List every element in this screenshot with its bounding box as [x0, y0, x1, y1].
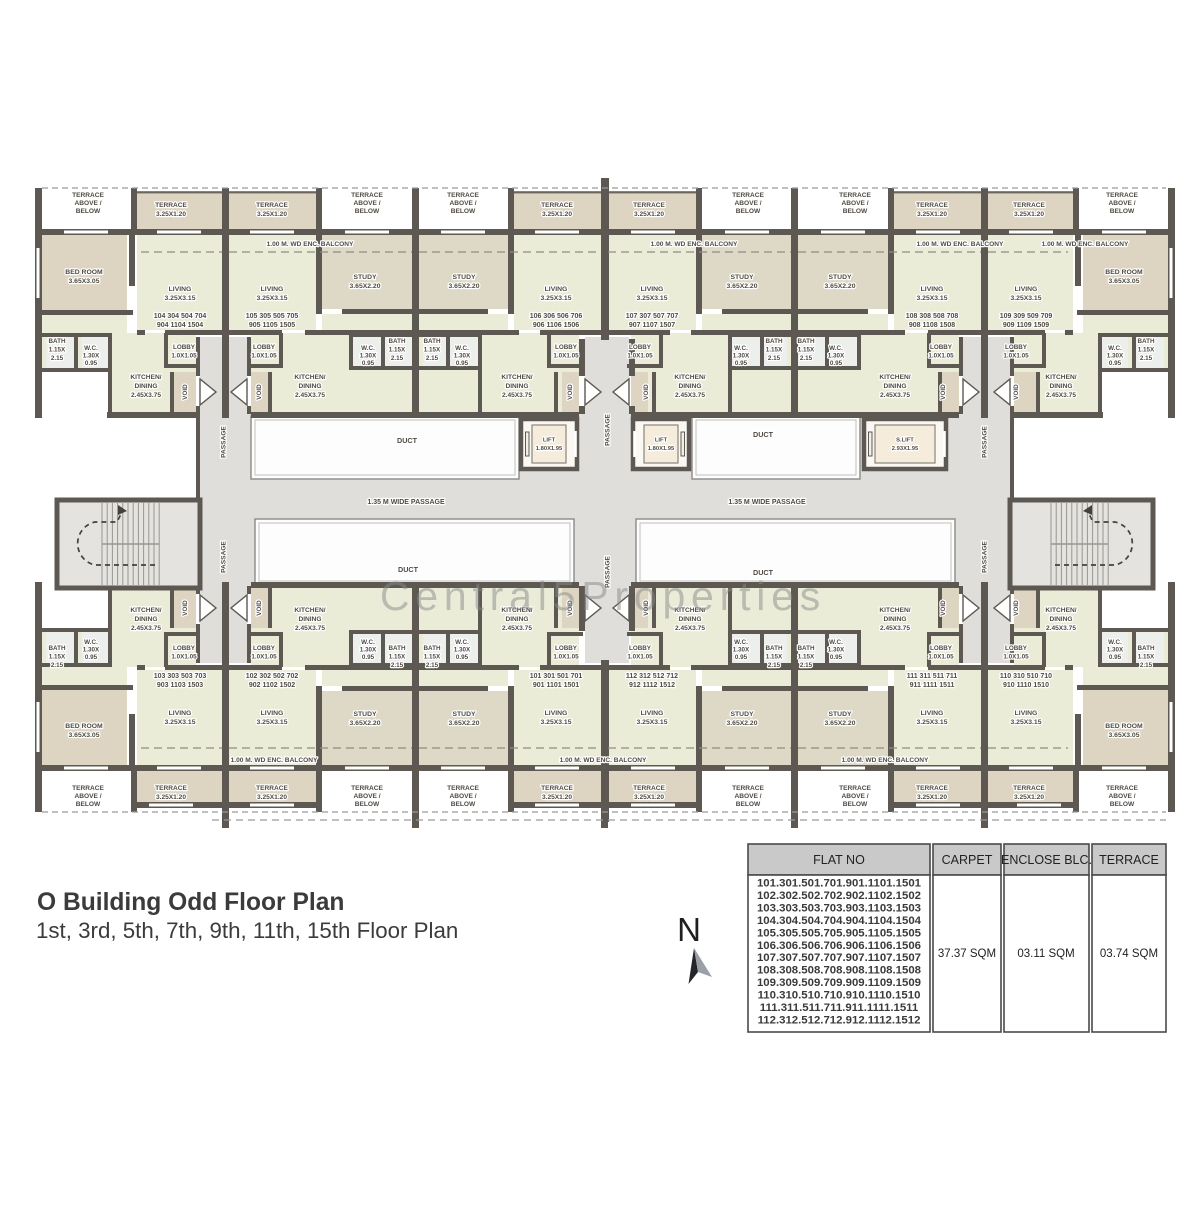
svg-text:FLAT NO: FLAT NO [813, 853, 865, 867]
svg-text:ABOVE /: ABOVE / [449, 793, 476, 800]
svg-text:BELOW: BELOW [451, 208, 476, 215]
svg-text:ABOVE /: ABOVE / [449, 200, 476, 207]
svg-text:DUCT: DUCT [397, 436, 418, 445]
svg-text:3.25X3.15: 3.25X3.15 [165, 719, 196, 726]
svg-text:S.LIFT: S.LIFT [896, 438, 914, 444]
svg-text:VOID: VOID [940, 600, 947, 616]
svg-text:902 1102 1502: 902 1102 1502 [249, 682, 295, 689]
svg-text:DUCT: DUCT [753, 430, 774, 439]
svg-text:LOBBY: LOBBY [930, 344, 953, 351]
svg-text:3.25X3.15: 3.25X3.15 [1011, 719, 1042, 726]
svg-text:1.00 M. WD ENC. BALCONY: 1.00 M. WD ENC. BALCONY [651, 241, 738, 248]
svg-text:BELOW: BELOW [76, 208, 101, 215]
svg-text:STUDY: STUDY [353, 711, 377, 718]
svg-text:1.15X: 1.15X [49, 346, 66, 353]
svg-text:1.00 M. WD ENC. BALCONY: 1.00 M. WD ENC. BALCONY [560, 757, 647, 764]
svg-text:3.65X3.05: 3.65X3.05 [69, 732, 100, 739]
svg-text:3.65X2.20: 3.65X2.20 [825, 720, 856, 727]
svg-text:2.15: 2.15 [426, 355, 439, 362]
svg-text:STUDY: STUDY [730, 711, 754, 718]
svg-text:1.0X1.05: 1.0X1.05 [627, 654, 653, 661]
svg-text:1.0X1.05: 1.0X1.05 [928, 353, 954, 360]
svg-text:PASSAGE: PASSAGE [221, 541, 228, 573]
svg-text:TERRACE: TERRACE [351, 785, 383, 792]
svg-text:0.95: 0.95 [735, 654, 748, 661]
svg-text:106 306 506 706: 106 306 506 706 [530, 313, 583, 320]
svg-text:LOBBY: LOBBY [555, 344, 578, 351]
svg-text:108.308.508.708.908.1108.1508: 108.308.508.708.908.1108.1508 [757, 965, 921, 977]
svg-text:KITCHEN/: KITCHEN/ [879, 607, 910, 614]
svg-text:0.95: 0.95 [1109, 654, 1122, 661]
svg-text:1.15X: 1.15X [49, 653, 66, 660]
svg-text:LIVING: LIVING [261, 710, 284, 717]
svg-text:STUDY: STUDY [353, 274, 377, 281]
svg-text:2.45X3.75: 2.45X3.75 [880, 392, 910, 399]
svg-text:2.15: 2.15 [800, 355, 813, 362]
svg-text:1.30X: 1.30X [828, 353, 845, 360]
svg-text:VOID: VOID [940, 384, 947, 400]
svg-text:ABOVE /: ABOVE / [1108, 793, 1135, 800]
svg-text:1.15X: 1.15X [798, 346, 815, 353]
svg-text:3.25X3.15: 3.25X3.15 [257, 719, 288, 726]
svg-text:909 1109 1509: 909 1109 1509 [1003, 322, 1049, 329]
svg-text:DINING: DINING [678, 383, 701, 390]
svg-text:907 1107 1507: 907 1107 1507 [629, 322, 675, 329]
svg-text:TERRACE: TERRACE [72, 192, 104, 199]
svg-text:3.65X2.20: 3.65X2.20 [449, 283, 480, 290]
svg-text:0.95: 0.95 [362, 654, 375, 661]
svg-text:1.00 M. WD ENC. BALCONY: 1.00 M. WD ENC. BALCONY [1042, 241, 1129, 248]
svg-text:3.25X1.20: 3.25X1.20 [1014, 211, 1044, 218]
svg-text:0.95: 0.95 [456, 360, 469, 367]
svg-text:BELOW: BELOW [355, 208, 380, 215]
svg-text:1.15X: 1.15X [766, 653, 783, 660]
svg-text:TERRACE: TERRACE [839, 785, 871, 792]
svg-text:TERRACE: TERRACE [541, 202, 573, 209]
svg-text:112.312.512.712.912.1112.1512: 112.312.512.712.912.1112.1512 [758, 1014, 921, 1026]
svg-text:110.310.510.710.910.1110.1510: 110.310.510.710.910.1110.1510 [758, 990, 921, 1002]
svg-text:103.303.503.703.903.1103.1503: 103.303.503.703.903.1103.1503 [757, 902, 921, 914]
svg-text:LIVING: LIVING [1015, 286, 1038, 293]
svg-text:LIVING: LIVING [261, 286, 284, 293]
svg-text:W.C.: W.C. [84, 345, 98, 352]
svg-text:0.95: 0.95 [456, 654, 469, 661]
svg-text:LIVING: LIVING [921, 286, 944, 293]
svg-text:STUDY: STUDY [452, 274, 476, 281]
svg-text:1.30X: 1.30X [1107, 647, 1124, 654]
svg-text:1.0X1.05: 1.0X1.05 [553, 654, 579, 661]
svg-text:109.309.509.709.909.1109.1509: 109.309.509.709.909.1109.1509 [757, 977, 921, 989]
svg-text:1.35 M WIDE PASSAGE: 1.35 M WIDE PASSAGE [728, 499, 806, 506]
svg-text:BATH: BATH [1137, 338, 1154, 345]
svg-text:W.C.: W.C. [455, 345, 469, 352]
svg-text:BELOW: BELOW [1110, 208, 1135, 215]
svg-text:BELOW: BELOW [451, 801, 476, 808]
svg-text:LIVING: LIVING [545, 710, 568, 717]
svg-text:108 308 508 708: 108 308 508 708 [906, 313, 959, 320]
svg-text:LOBBY: LOBBY [253, 344, 276, 351]
svg-text:O Building Odd Floor Plan: O Building Odd Floor Plan [37, 889, 344, 916]
svg-text:LOBBY: LOBBY [1005, 645, 1028, 652]
svg-text:2.45X3.75: 2.45X3.75 [295, 392, 325, 399]
svg-text:1.80X1.95: 1.80X1.95 [536, 446, 563, 452]
svg-text:1.0X1.05: 1.0X1.05 [627, 353, 653, 360]
svg-text:BATH: BATH [765, 645, 782, 652]
svg-text:LIFT: LIFT [655, 438, 668, 444]
svg-text:BELOW: BELOW [76, 801, 101, 808]
svg-text:1st, 3rd, 5th, 7th, 9th, 11th,: 1st, 3rd, 5th, 7th, 9th, 11th, 15th Floo… [36, 918, 458, 943]
svg-text:101 301 501 701: 101 301 501 701 [530, 673, 583, 680]
svg-text:KITCHEN/: KITCHEN/ [294, 607, 325, 614]
svg-text:904 1104 1504: 904 1104 1504 [157, 322, 203, 329]
svg-text:LOBBY: LOBBY [253, 645, 276, 652]
svg-text:908 1108 1508: 908 1108 1508 [909, 322, 955, 329]
svg-text:103 303 503 703: 103 303 503 703 [154, 673, 207, 680]
svg-text:DINING: DINING [1049, 616, 1072, 623]
svg-text:107 307 507 707: 107 307 507 707 [626, 313, 679, 320]
svg-text:BELOW: BELOW [843, 208, 868, 215]
svg-text:TERRACE: TERRACE [1099, 853, 1159, 867]
svg-text:1.00 M. WD ENC. BALCONY: 1.00 M. WD ENC. BALCONY [842, 757, 929, 764]
svg-text:W.C.: W.C. [361, 345, 375, 352]
svg-text:DINING: DINING [298, 383, 321, 390]
svg-text:BATH: BATH [1137, 645, 1154, 652]
svg-text:KITCHEN/: KITCHEN/ [1045, 607, 1076, 614]
svg-text:1.0X1.05: 1.0X1.05 [928, 654, 954, 661]
svg-text:TERRACE: TERRACE [447, 785, 479, 792]
svg-text:TERRACE: TERRACE [256, 785, 288, 792]
svg-text:TERRACE: TERRACE [155, 202, 187, 209]
svg-text:2.45X3.75: 2.45X3.75 [1046, 392, 1076, 399]
svg-text:BATH: BATH [423, 338, 440, 345]
svg-text:911 1111 1511: 911 1111 1511 [910, 682, 955, 689]
svg-text:VOID: VOID [1013, 600, 1020, 616]
svg-text:DINING: DINING [134, 616, 157, 623]
svg-text:3.65X3.05: 3.65X3.05 [1109, 278, 1140, 285]
svg-text:0.95: 0.95 [830, 360, 843, 367]
svg-text:2.45X3.75: 2.45X3.75 [502, 392, 532, 399]
svg-text:DINING: DINING [134, 383, 157, 390]
svg-text:912 1112 1512: 912 1112 1512 [629, 682, 675, 689]
svg-text:LIVING: LIVING [545, 286, 568, 293]
svg-text:37.37 SQM: 37.37 SQM [938, 948, 996, 960]
svg-text:TERRACE: TERRACE [541, 785, 573, 792]
svg-text:03.11 SQM: 03.11 SQM [1017, 948, 1074, 960]
svg-text:W.C.: W.C. [734, 639, 748, 646]
svg-text:1.30X: 1.30X [828, 647, 845, 654]
svg-text:TERRACE: TERRACE [351, 192, 383, 199]
svg-text:0.95: 0.95 [85, 360, 98, 367]
svg-text:1.30X: 1.30X [360, 647, 377, 654]
svg-text:906 1106 1506: 906 1106 1506 [533, 322, 579, 329]
svg-text:W.C.: W.C. [84, 639, 98, 646]
svg-text:VOID: VOID [182, 384, 189, 400]
svg-text:TERRACE: TERRACE [916, 202, 948, 209]
svg-text:TERRACE: TERRACE [1106, 192, 1138, 199]
svg-text:109 309 509 709: 109 309 509 709 [1000, 313, 1053, 320]
svg-text:0.95: 0.95 [85, 654, 98, 661]
svg-text:3.25X1.20: 3.25X1.20 [257, 794, 287, 801]
svg-text:BATH: BATH [388, 338, 405, 345]
svg-text:KITCHEN/: KITCHEN/ [130, 607, 161, 614]
svg-text:102 302 502 702: 102 302 502 702 [246, 673, 299, 680]
svg-text:3.65X2.20: 3.65X2.20 [350, 283, 381, 290]
svg-text:3.65X2.20: 3.65X2.20 [350, 720, 381, 727]
svg-text:3.25X3.15: 3.25X3.15 [541, 295, 572, 302]
svg-text:KITCHEN/: KITCHEN/ [501, 374, 532, 381]
svg-text:BELOW: BELOW [843, 801, 868, 808]
svg-text:3.25X3.15: 3.25X3.15 [165, 295, 196, 302]
svg-text:3.65X3.05: 3.65X3.05 [1109, 732, 1140, 739]
svg-text:DINING: DINING [1049, 383, 1072, 390]
svg-text:W.C.: W.C. [829, 639, 843, 646]
svg-text:910 1110 1510: 910 1110 1510 [1003, 682, 1049, 689]
svg-text:VOID: VOID [643, 384, 650, 400]
svg-text:W.C.: W.C. [455, 639, 469, 646]
svg-text:TERRACE: TERRACE [1013, 202, 1045, 209]
svg-text:1.15X: 1.15X [798, 653, 815, 660]
svg-text:3.25X3.15: 3.25X3.15 [541, 719, 572, 726]
svg-text:Central5Properties: Central5Properties [380, 573, 826, 619]
svg-text:1.15X: 1.15X [424, 346, 441, 353]
svg-text:1.00 M. WD ENC. BALCONY: 1.00 M. WD ENC. BALCONY [267, 241, 354, 248]
svg-text:PASSAGE: PASSAGE [221, 426, 228, 458]
svg-text:BED ROOM: BED ROOM [65, 723, 103, 730]
svg-text:STUDY: STUDY [452, 711, 476, 718]
svg-text:1.0X1.05: 1.0X1.05 [251, 353, 277, 360]
svg-text:104.304.504.704.904.1104.1504: 104.304.504.704.904.1104.1504 [757, 915, 922, 927]
svg-text:3.25X3.15: 3.25X3.15 [637, 295, 668, 302]
svg-text:1.30X: 1.30X [733, 647, 750, 654]
svg-text:VOID: VOID [567, 384, 574, 400]
svg-text:3.25X3.15: 3.25X3.15 [917, 719, 948, 726]
svg-text:LOBBY: LOBBY [629, 645, 652, 652]
svg-text:2.45X3.75: 2.45X3.75 [675, 392, 705, 399]
svg-text:ABOVE /: ABOVE / [74, 793, 101, 800]
svg-text:TERRACE: TERRACE [732, 785, 764, 792]
svg-text:1.0X1.05: 1.0X1.05 [171, 654, 197, 661]
svg-text:STUDY: STUDY [730, 274, 754, 281]
svg-text:VOID: VOID [256, 600, 263, 616]
svg-text:LOBBY: LOBBY [173, 344, 196, 351]
svg-text:2.15: 2.15 [768, 355, 781, 362]
svg-text:1.0X1.05: 1.0X1.05 [1003, 353, 1029, 360]
svg-text:STUDY: STUDY [828, 274, 852, 281]
svg-text:LOBBY: LOBBY [930, 645, 953, 652]
svg-text:1.0X1.05: 1.0X1.05 [553, 353, 579, 360]
svg-text:3.25X3.15: 3.25X3.15 [257, 295, 288, 302]
svg-text:905 1105 1505: 905 1105 1505 [249, 322, 295, 329]
svg-text:112 312 512 712: 112 312 512 712 [626, 673, 678, 680]
svg-text:0.95: 0.95 [735, 360, 748, 367]
svg-text:2.45X3.75: 2.45X3.75 [295, 625, 325, 632]
svg-text:2.45X3.75: 2.45X3.75 [131, 625, 161, 632]
svg-text:3.25X1.20: 3.25X1.20 [917, 794, 947, 801]
svg-text:BATH: BATH [48, 338, 65, 345]
svg-text:2.15: 2.15 [51, 355, 64, 362]
svg-text:102.302.502.702.902.1102.1502: 102.302.502.702.902.1102.1502 [757, 890, 921, 902]
svg-text:LOBBY: LOBBY [555, 645, 578, 652]
svg-text:BATH: BATH [797, 645, 814, 652]
svg-text:LIVING: LIVING [641, 286, 664, 293]
svg-text:LIVING: LIVING [641, 710, 664, 717]
svg-text:106.306.506.706.906.1106.1506: 106.306.506.706.906.1106.1506 [757, 940, 921, 952]
svg-text:LIVING: LIVING [169, 710, 192, 717]
svg-text:104 304 504 704: 104 304 504 704 [154, 313, 207, 320]
svg-text:TERRACE: TERRACE [256, 202, 288, 209]
svg-text:KITCHEN/: KITCHEN/ [294, 374, 325, 381]
svg-text:3.65X2.20: 3.65X2.20 [727, 283, 758, 290]
svg-text:105.305.505.705.905.1105.1505: 105.305.505.705.905.1105.1505 [757, 927, 922, 939]
svg-text:BATH: BATH [797, 338, 814, 345]
svg-text:1.15X: 1.15X [1138, 346, 1155, 353]
svg-text:1.0X1.05: 1.0X1.05 [251, 654, 277, 661]
svg-text:3.25X1.20: 3.25X1.20 [156, 794, 186, 801]
svg-text:2.15: 2.15 [1140, 662, 1153, 669]
svg-text:3.65X2.20: 3.65X2.20 [825, 283, 856, 290]
svg-text:ENCLOSE BLC.: ENCLOSE BLC. [1001, 853, 1092, 867]
svg-text:1.15X: 1.15X [424, 653, 441, 660]
svg-text:W.C.: W.C. [734, 345, 748, 352]
svg-text:2.15: 2.15 [800, 662, 813, 669]
svg-text:TERRACE: TERRACE [1106, 785, 1138, 792]
svg-text:BELOW: BELOW [355, 801, 380, 808]
svg-text:2.15: 2.15 [768, 662, 781, 669]
svg-text:3.65X2.20: 3.65X2.20 [727, 720, 758, 727]
svg-text:3.25X1.20: 3.25X1.20 [634, 211, 664, 218]
svg-text:W.C.: W.C. [361, 639, 375, 646]
svg-text:3.25X1.20: 3.25X1.20 [917, 211, 947, 218]
svg-text:111 311 511 711: 111 311 511 711 [907, 673, 958, 680]
svg-text:ABOVE /: ABOVE / [1108, 200, 1135, 207]
svg-text:1.30X: 1.30X [454, 647, 471, 654]
svg-text:1.15X: 1.15X [766, 346, 783, 353]
svg-text:1.35 M WIDE PASSAGE: 1.35 M WIDE PASSAGE [367, 499, 445, 506]
svg-text:1.15X: 1.15X [1138, 653, 1155, 660]
svg-text:1.0X1.05: 1.0X1.05 [1003, 654, 1029, 661]
svg-text:STUDY: STUDY [828, 711, 852, 718]
svg-text:ABOVE /: ABOVE / [734, 200, 761, 207]
svg-text:3.25X1.20: 3.25X1.20 [542, 794, 572, 801]
svg-text:TERRACE: TERRACE [732, 192, 764, 199]
svg-text:2.15: 2.15 [1140, 355, 1153, 362]
svg-text:TERRACE: TERRACE [633, 202, 665, 209]
svg-text:2.45X3.75: 2.45X3.75 [502, 625, 532, 632]
svg-text:BED ROOM: BED ROOM [1105, 269, 1143, 276]
svg-text:TERRACE: TERRACE [155, 785, 187, 792]
svg-text:DINING: DINING [883, 383, 906, 390]
svg-text:2.15: 2.15 [426, 662, 439, 669]
svg-text:BED ROOM: BED ROOM [65, 269, 103, 276]
svg-text:1.00 M. WD ENC. BALCONY: 1.00 M. WD ENC. BALCONY [917, 241, 1004, 248]
svg-text:1.80X1.95: 1.80X1.95 [648, 446, 675, 452]
svg-text:3.25X1.20: 3.25X1.20 [257, 211, 287, 218]
svg-text:LIVING: LIVING [169, 286, 192, 293]
svg-text:W.C.: W.C. [1108, 345, 1122, 352]
svg-text:903 1103 1503: 903 1103 1503 [157, 682, 203, 689]
svg-text:PASSAGE: PASSAGE [982, 541, 989, 573]
svg-text:3.25X3.15: 3.25X3.15 [1011, 295, 1042, 302]
svg-text:2.15: 2.15 [51, 662, 64, 669]
svg-text:ABOVE /: ABOVE / [353, 200, 380, 207]
svg-text:2.45X3.75: 2.45X3.75 [675, 625, 705, 632]
svg-text:TERRACE: TERRACE [72, 785, 104, 792]
svg-text:DINING: DINING [883, 616, 906, 623]
svg-text:W.C.: W.C. [829, 345, 843, 352]
svg-text:0.95: 0.95 [362, 360, 375, 367]
svg-text:ABOVE /: ABOVE / [841, 200, 868, 207]
svg-text:110 310 510 710: 110 310 510 710 [1000, 673, 1052, 680]
svg-text:VOID: VOID [182, 600, 189, 616]
svg-text:1.15X: 1.15X [389, 346, 406, 353]
svg-text:KITCHEN/: KITCHEN/ [674, 374, 705, 381]
svg-text:PASSAGE: PASSAGE [605, 414, 612, 446]
svg-text:BATH: BATH [765, 338, 782, 345]
svg-text:LOBBY: LOBBY [629, 344, 652, 351]
svg-text:3.65X3.05: 3.65X3.05 [69, 278, 100, 285]
svg-text:KITCHEN/: KITCHEN/ [1045, 374, 1076, 381]
svg-text:LOBBY: LOBBY [173, 645, 196, 652]
svg-text:TERRACE: TERRACE [633, 785, 665, 792]
svg-text:3.25X1.20: 3.25X1.20 [156, 211, 186, 218]
svg-text:ABOVE /: ABOVE / [353, 793, 380, 800]
svg-text:105 305 505 705: 105 305 505 705 [246, 313, 299, 320]
svg-text:DINING: DINING [505, 383, 528, 390]
svg-text:3.25X3.15: 3.25X3.15 [917, 295, 948, 302]
svg-text:LOBBY: LOBBY [1005, 344, 1028, 351]
svg-text:3.25X3.15: 3.25X3.15 [637, 719, 668, 726]
svg-text:LIFT: LIFT [543, 438, 556, 444]
svg-text:PASSAGE: PASSAGE [982, 426, 989, 458]
svg-text:LIVING: LIVING [1015, 710, 1038, 717]
svg-text:ABOVE /: ABOVE / [74, 200, 101, 207]
svg-text:ABOVE /: ABOVE / [734, 793, 761, 800]
svg-text:VOID: VOID [256, 384, 263, 400]
svg-text:ABOVE /: ABOVE / [841, 793, 868, 800]
svg-text:101.301.501.701.901.1101.1501: 101.301.501.701.901.1101.1501 [757, 878, 922, 890]
svg-text:TERRACE: TERRACE [447, 192, 479, 199]
svg-text:1.00 M. WD ENC. BALCONY: 1.00 M. WD ENC. BALCONY [231, 757, 318, 764]
svg-text:KITCHEN/: KITCHEN/ [879, 374, 910, 381]
svg-text:VOID: VOID [1013, 384, 1020, 400]
svg-text:2.45X3.75: 2.45X3.75 [1046, 625, 1076, 632]
svg-text:3.25X1.20: 3.25X1.20 [634, 794, 664, 801]
svg-text:BELOW: BELOW [736, 208, 761, 215]
svg-text:BATH: BATH [48, 645, 65, 652]
svg-text:3.25X1.20: 3.25X1.20 [542, 211, 572, 218]
svg-text:BATH: BATH [423, 645, 440, 652]
svg-text:2.15: 2.15 [391, 662, 404, 669]
svg-text:1.30X: 1.30X [1107, 353, 1124, 360]
svg-text:W.C.: W.C. [1108, 639, 1122, 646]
svg-text:901 1101 1501: 901 1101 1501 [533, 682, 579, 689]
svg-text:2.15: 2.15 [391, 355, 404, 362]
svg-text:1.30X: 1.30X [83, 353, 100, 360]
svg-text:3.65X2.20: 3.65X2.20 [449, 720, 480, 727]
svg-text:BATH: BATH [388, 645, 405, 652]
svg-text:DINING: DINING [298, 616, 321, 623]
svg-text:1.30X: 1.30X [454, 353, 471, 360]
svg-text:2.45X3.75: 2.45X3.75 [131, 392, 161, 399]
svg-text:TERRACE: TERRACE [916, 785, 948, 792]
svg-text:KITCHEN/: KITCHEN/ [130, 374, 161, 381]
svg-text:2.93X1.95: 2.93X1.95 [892, 446, 919, 452]
svg-text:TERRACE: TERRACE [1013, 785, 1045, 792]
svg-text:CARPET: CARPET [942, 853, 993, 867]
svg-text:BELOW: BELOW [736, 801, 761, 808]
svg-text:0.95: 0.95 [830, 654, 843, 661]
svg-text:1.30X: 1.30X [733, 353, 750, 360]
